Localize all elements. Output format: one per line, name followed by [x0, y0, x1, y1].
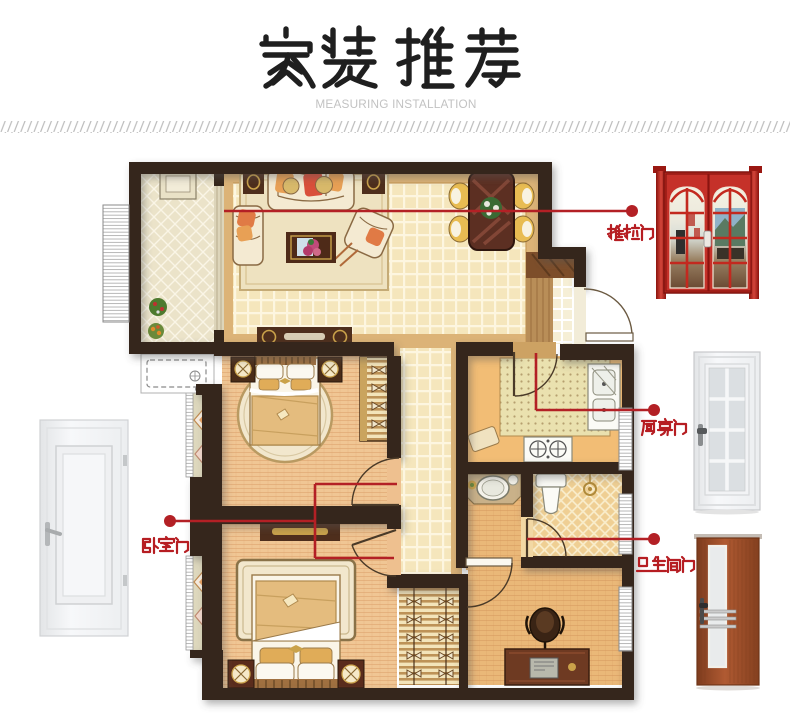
svg-text:MEASURING INSTALLATION: MEASURING INSTALLATION [315, 97, 476, 111]
